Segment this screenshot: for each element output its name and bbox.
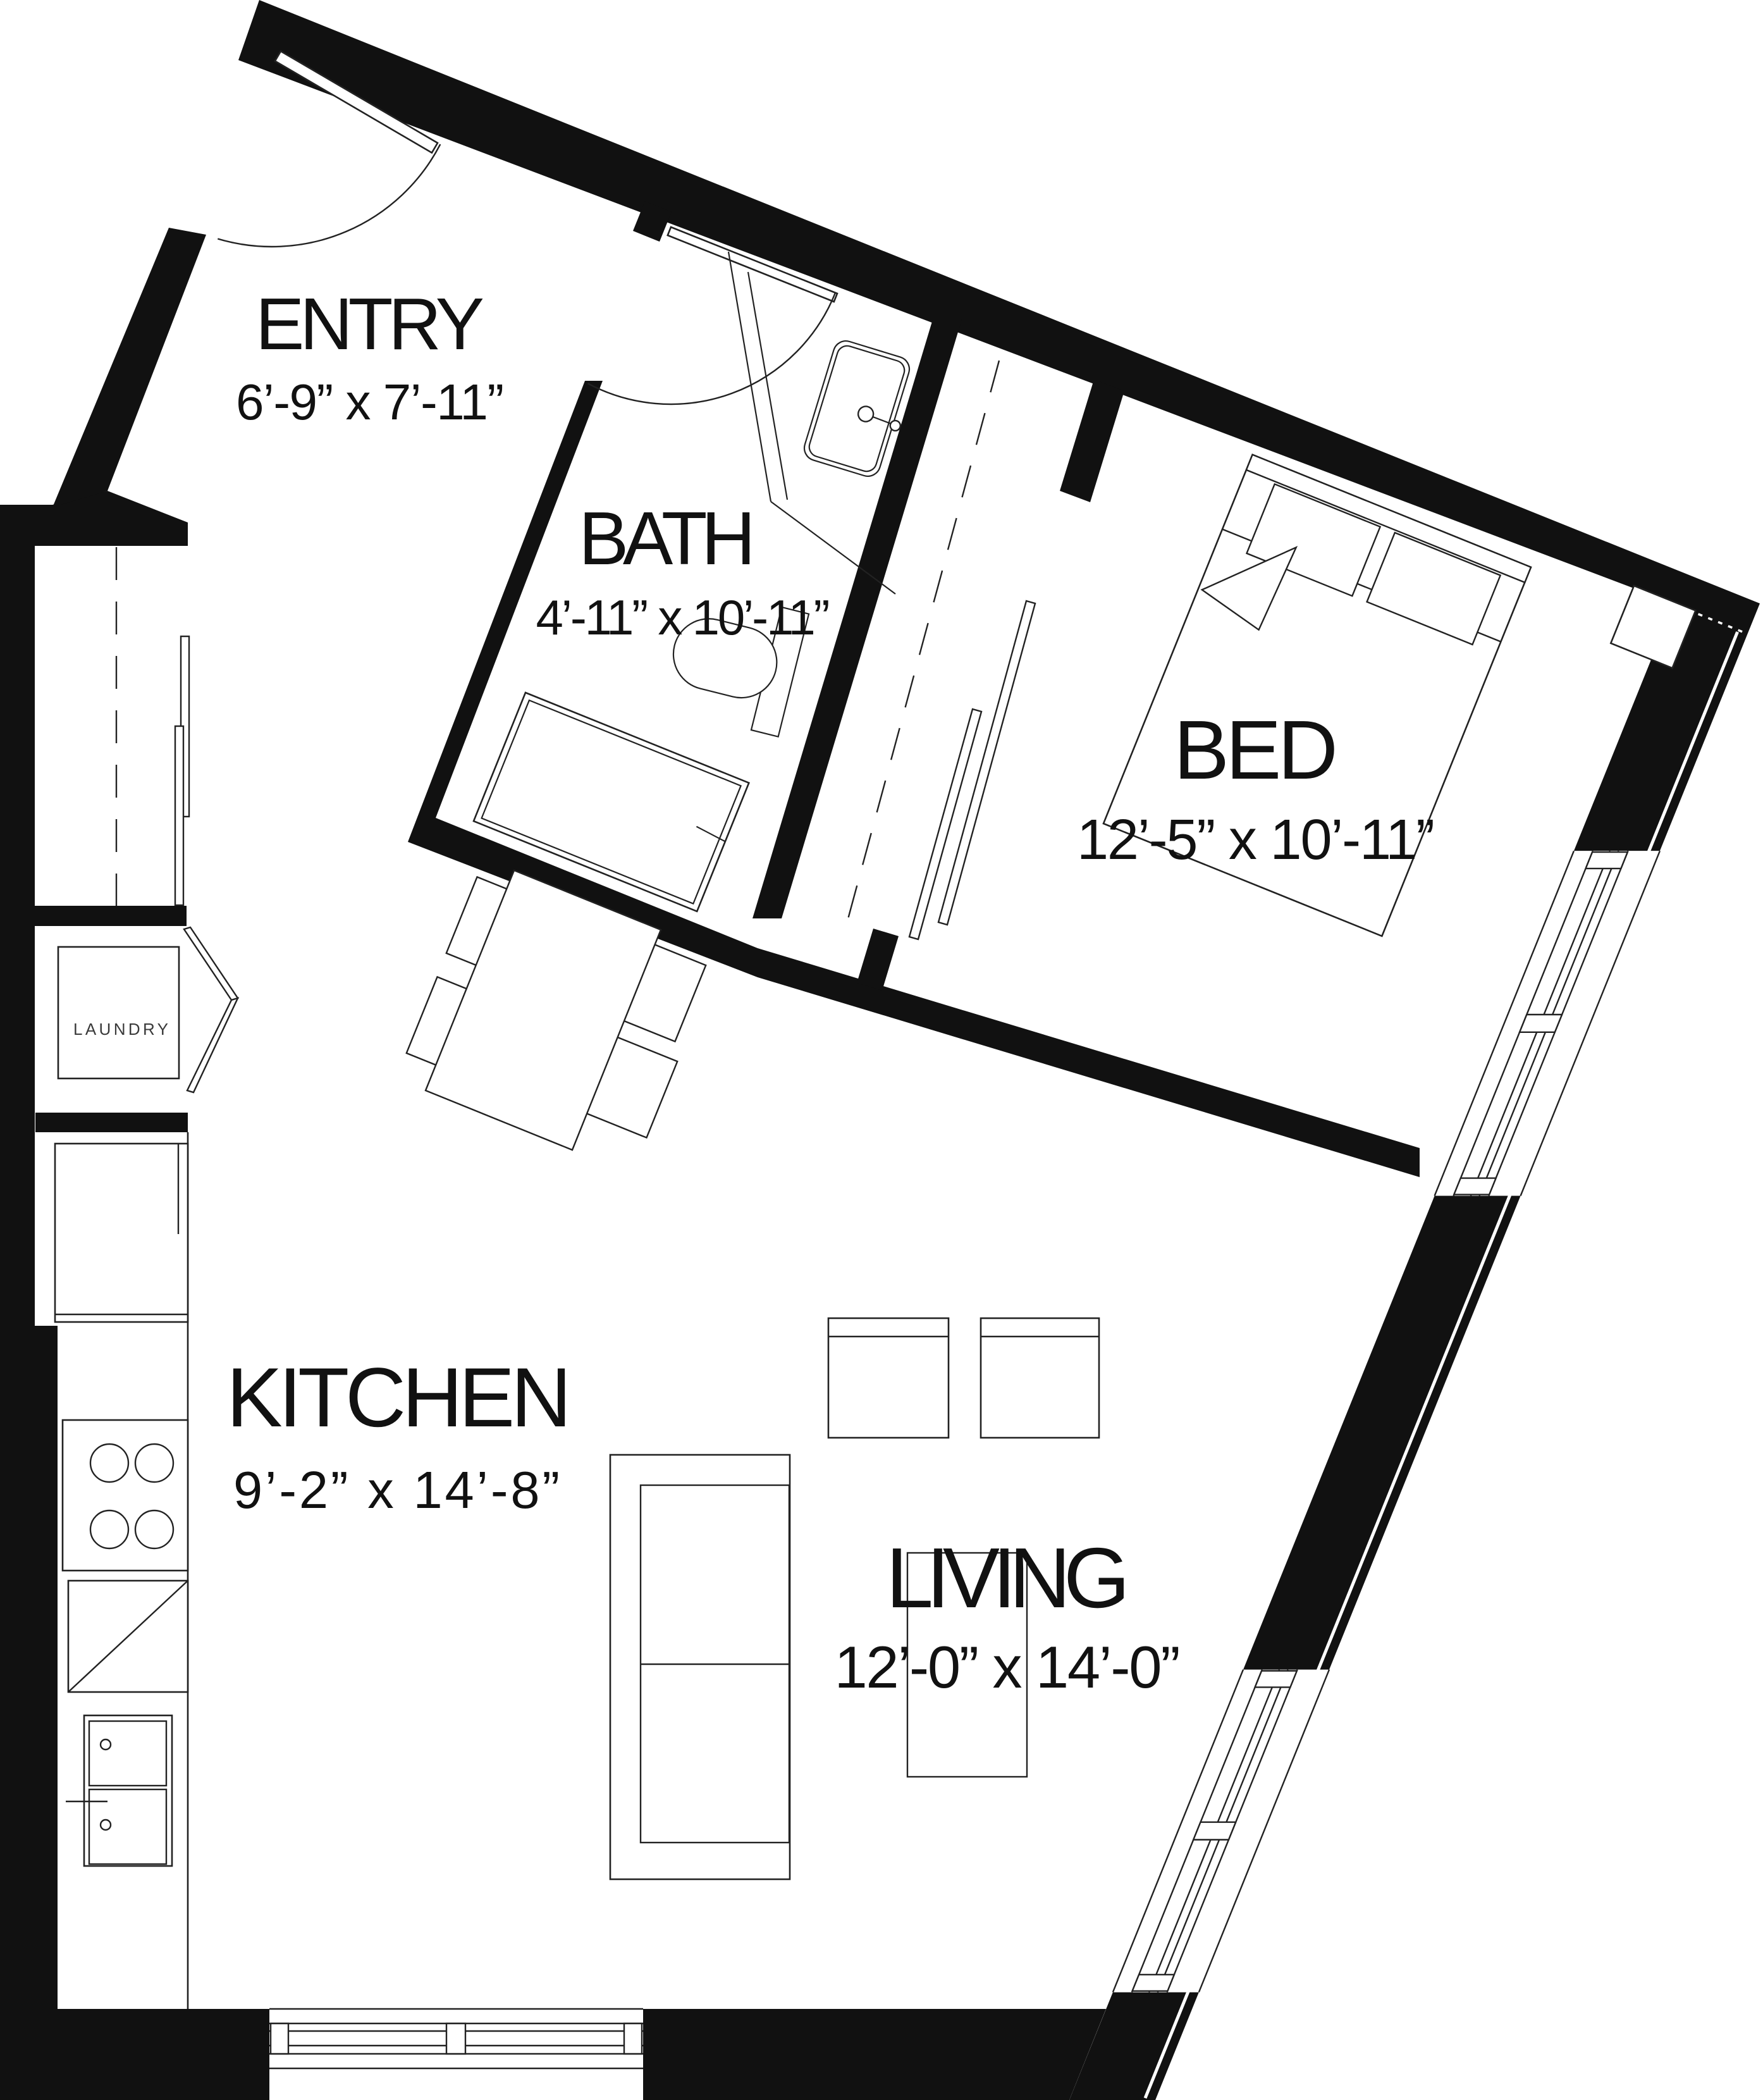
- svg-text:LIVING: LIVING: [886, 1530, 1130, 1626]
- svg-text:6’-9” x 7’-11”: 6’-9” x 7’-11”: [236, 374, 504, 430]
- svg-text:BATH: BATH: [579, 497, 756, 581]
- svg-text:KITCHEN: KITCHEN: [226, 1351, 572, 1445]
- svg-text:12’-0” x 14’-0”: 12’-0” x 14’-0”: [835, 1634, 1181, 1700]
- svg-text:12’-5” x 10’-11”: 12’-5” x 10’-11”: [1077, 808, 1435, 872]
- svg-text:LAUNDRY: LAUNDRY: [73, 1020, 168, 1039]
- svg-text:4’-11” x 10’-11”: 4’-11” x 10’-11”: [536, 590, 830, 645]
- svg-text:BED: BED: [1174, 703, 1338, 796]
- svg-text:9’-2” x 14’-8”: 9’-2” x 14’-8”: [233, 1461, 560, 1519]
- svg-text:ENTRY: ENTRY: [255, 283, 484, 365]
